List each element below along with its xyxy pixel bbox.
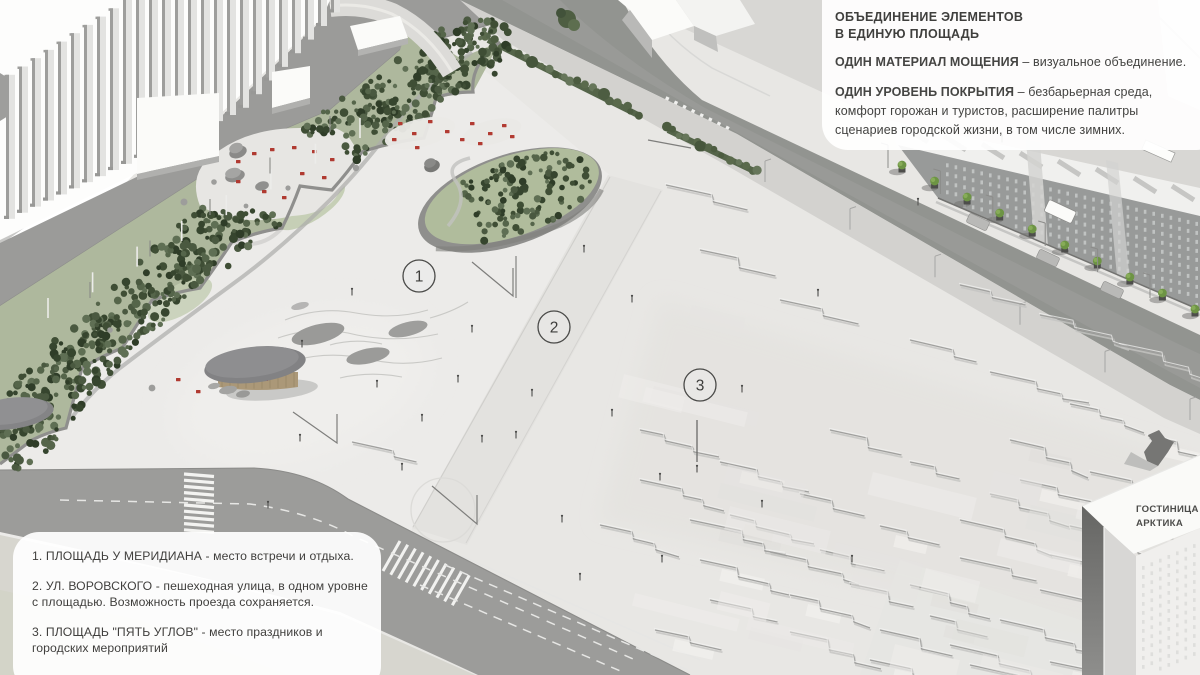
svg-text:ГОСТИНИЦА: ГОСТИНИЦА [1136,504,1199,515]
svg-text:АРКТИКА: АРКТИКА [1136,518,1183,529]
svg-text:1: 1 [415,269,424,286]
svg-text:3: 3 [696,378,705,395]
svg-text:2: 2 [550,320,559,337]
